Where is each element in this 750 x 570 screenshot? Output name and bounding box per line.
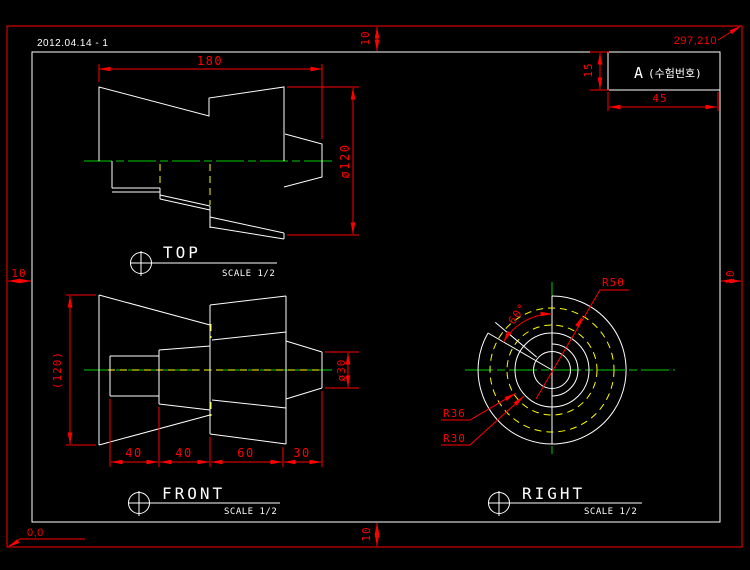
top-view-scale: SCALE 1/2 [222, 269, 275, 279]
margin-dim-top-text: 10 [359, 30, 372, 45]
margin-dimensions: 10 10 10 10 [8, 27, 741, 546]
front-view: (120) ø30 40 40 60 30 FRONT SCALE 1/2 [51, 295, 359, 517]
date-label: 2012.04.14 - 1 [37, 38, 109, 49]
datum-labels: 2012.04.14 - 1 297,210 0,0 [7, 24, 742, 549]
front-seg1-text: 40 [125, 446, 142, 460]
margin-dim-left-text: 10 [11, 267, 26, 280]
drawing-borders [7, 26, 742, 547]
front-seg4-text: 30 [293, 446, 310, 460]
right-r36-text: R36 [443, 407, 466, 420]
top-view-name: TOP [163, 243, 201, 262]
origin-label: 0,0 [27, 527, 44, 539]
margin-dim-right-text: 10 [724, 269, 737, 284]
origin-callout: 0,0 [7, 527, 85, 549]
top-view-hidden-lines [160, 164, 210, 205]
right-view-label: RIGHT SCALE 1/2 [488, 484, 642, 517]
margin-dim-left: 10 [8, 267, 31, 281]
top-view-length-dim: 180 [99, 54, 322, 139]
front-seg2-text: 40 [175, 446, 192, 460]
margin-dim-right: 10 [721, 269, 741, 284]
top-view-geometry [99, 87, 322, 239]
top-length-ext [99, 64, 322, 139]
top-view-label: TOP SCALE 1/2 [130, 243, 277, 279]
right-view-r36-dim: R36 [441, 391, 517, 420]
front-view-name: FRONT [162, 484, 225, 503]
origin-leader [9, 539, 85, 546]
cad-application-canvas: 2012.04.14 - 1 297,210 0,0 10 10 10 10 [0, 0, 750, 570]
top-view: 180 ø120 TOP SCALE 1/2 [84, 54, 359, 279]
title-block-width-dim: 45 [608, 92, 718, 111]
front-view-scale: SCALE 1/2 [224, 507, 277, 517]
right-view-scale: SCALE 1/2 [584, 507, 637, 517]
cad-drawing: 2012.04.14 - 1 297,210 0,0 10 10 10 10 [0, 0, 750, 570]
margin-dim-bottom: 10 [360, 523, 377, 546]
title-block-exam-label: (수험번호) [648, 67, 702, 80]
right-r50-leader [536, 290, 629, 399]
title-block-grade: A [634, 64, 643, 82]
right-r30-text: R30 [443, 432, 466, 445]
margin-dim-top: 10 [359, 27, 377, 51]
title-block: A (수험번호) 15 45 [582, 52, 720, 111]
paper-size-label: 297,210 [674, 35, 717, 47]
top-length-text: 180 [197, 54, 223, 68]
top-diameter-text: ø120 [338, 144, 352, 179]
top-outline-upper [99, 87, 322, 161]
title-block-height-dim: 15 [582, 52, 609, 90]
front-shaft-steps [110, 346, 210, 410]
front-view-bottom-dims: 40 40 60 30 [110, 391, 322, 467]
top-outline-lower [112, 161, 322, 239]
right-r50-text: R50 [602, 276, 625, 289]
title-height-text: 15 [582, 62, 595, 77]
right-view: 60° R50 R36 R30 RIGHT SCALE 1/2 [441, 276, 675, 517]
front-height-text: (120) [51, 351, 64, 389]
front-seg3-text: 60 [237, 446, 254, 460]
front-tip-text: ø30 [335, 359, 348, 382]
paper-size-callout: 297,210 [674, 24, 742, 47]
margin-dim-bottom-text: 10 [360, 526, 373, 541]
outer-border [7, 26, 742, 547]
right-notch-edges [488, 322, 552, 370]
front-view-label: FRONT SCALE 1/2 [128, 484, 280, 517]
right-view-name: RIGHT [522, 484, 585, 503]
title-width-text: 45 [652, 92, 667, 105]
